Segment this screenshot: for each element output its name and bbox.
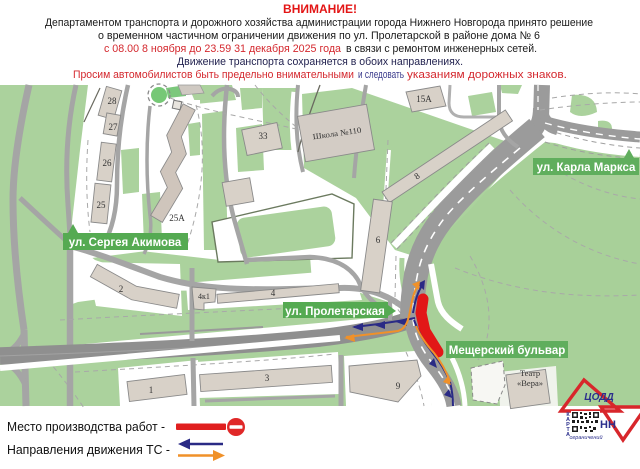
svg-text:«Вера»: «Вера» (517, 378, 543, 388)
svg-text:Просим автомобилистов быть пре: Просим автомобилистов быть предельно вни… (73, 69, 354, 81)
svg-text:Мещерский бульвар: Мещерский бульвар (449, 345, 566, 357)
svg-text:ул. Карла Маркса: ул. Карла Маркса (537, 162, 636, 174)
svg-text:33: 33 (259, 131, 269, 141)
svg-text:Направления движения ТС -: Направления движения ТС - (7, 442, 170, 457)
svg-text:НН: НН (600, 419, 616, 431)
svg-text:в связи с ремонтом инженерных: в связи с ремонтом инженерных сетей. (346, 43, 537, 55)
svg-text:4к1: 4к1 (198, 292, 210, 301)
svg-text:1: 1 (149, 385, 154, 395)
svg-text:4: 4 (271, 288, 276, 298)
svg-text:2: 2 (119, 284, 124, 294)
svg-text:25А: 25А (169, 213, 185, 223)
svg-text:25: 25 (97, 200, 107, 210)
svg-text:3: 3 (265, 373, 270, 383)
svg-text:6: 6 (376, 235, 381, 245)
svg-text:с 08.00 8 ноября до 23.59 31 д: с 08.00 8 ноября до 23.59 31 декабря 202… (104, 43, 342, 55)
svg-text:Театр: Театр (520, 368, 540, 378)
svg-text:ограничений: ограничений (569, 434, 602, 441)
svg-text:и следовать: и следовать (358, 69, 404, 81)
svg-text:Движение транспорта сохраняетс: Движение транспорта сохраняется в обоих … (177, 56, 463, 68)
svg-text:о временном частичном ограниче: о временном частичном ограничении движен… (98, 30, 540, 42)
svg-text:28: 28 (108, 96, 118, 106)
svg-text:9: 9 (396, 381, 401, 391)
svg-text:ВНИМАНИЕ!: ВНИМАНИЕ! (283, 2, 357, 16)
svg-text:ул. Пролетарская: ул. Пролетарская (285, 306, 385, 318)
svg-text:указаниям дорожных знаков.: указаниям дорожных знаков. (407, 69, 567, 81)
svg-text:26: 26 (103, 158, 113, 168)
svg-text:27: 27 (109, 122, 119, 132)
svg-text:ЦОДД: ЦОДД (584, 392, 613, 403)
svg-text:Департаментом транспорта и дор: Департаментом транспорта и дорожного хоз… (45, 17, 593, 29)
svg-text:ул. Сергея Акимова: ул. Сергея Акимова (69, 237, 182, 249)
svg-text:Место производства работ -: Место производства работ - (7, 419, 165, 434)
svg-text:15А: 15А (416, 94, 432, 104)
